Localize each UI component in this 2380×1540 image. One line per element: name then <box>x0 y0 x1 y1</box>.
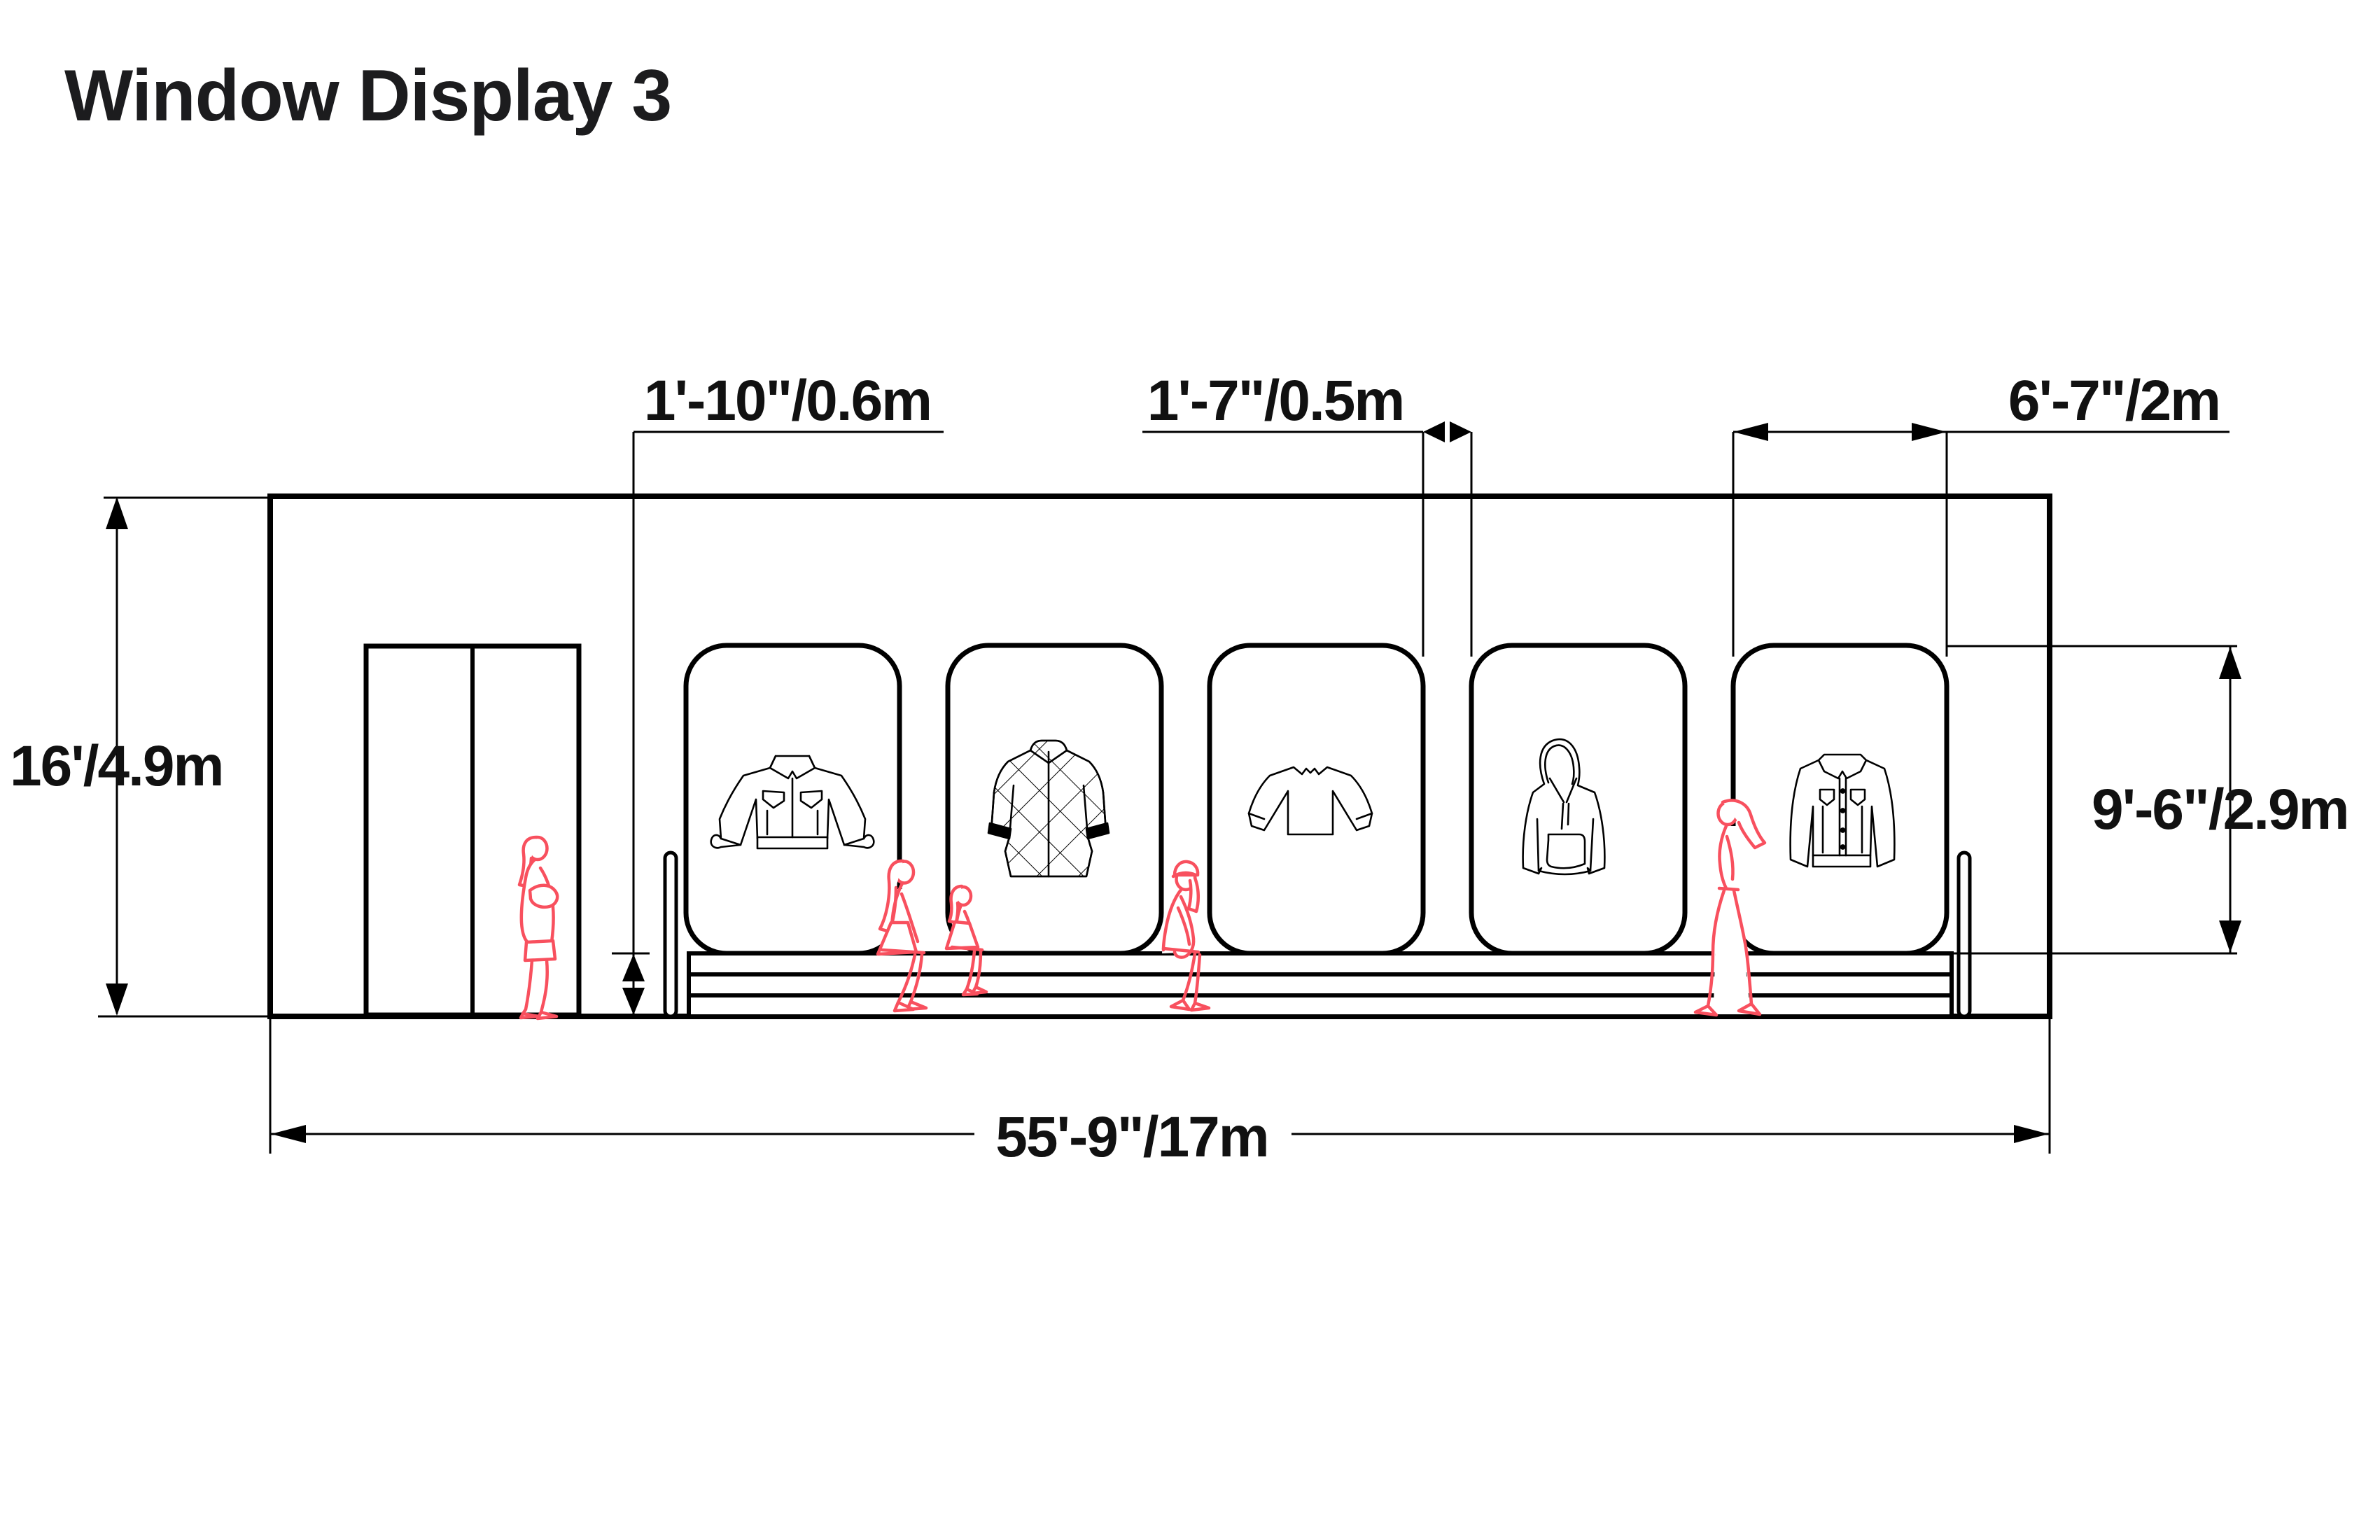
dim-label-window-width: 6'-7"/2m <box>2008 368 2220 434</box>
page-title: Window Display 3 <box>64 55 671 138</box>
dim-label-building-width: 55'-9"/17m <box>986 1105 1277 1170</box>
dim-label-window-gap: 1'-7"/0.5m <box>1147 368 1404 434</box>
bench-end-post-right <box>1959 853 1970 1016</box>
garment-denim-jacket-drawing <box>1791 755 1895 867</box>
elevation-drawing <box>0 0 2380 1540</box>
dim-label-building-height: 16'/4.9m <box>10 734 223 799</box>
garment-sweater-drawing <box>1249 767 1372 834</box>
dim-label-bench-height: 1'-10"/0.6m <box>644 368 931 434</box>
window-display-elevation-sheet: Window Display 3 1'-10"/0.6m 1'-7"/0.5m … <box>0 0 2380 1540</box>
bench-end-post-left <box>665 853 676 1016</box>
dim-label-window-height: 9'-6"/2.9m <box>2092 777 2348 843</box>
